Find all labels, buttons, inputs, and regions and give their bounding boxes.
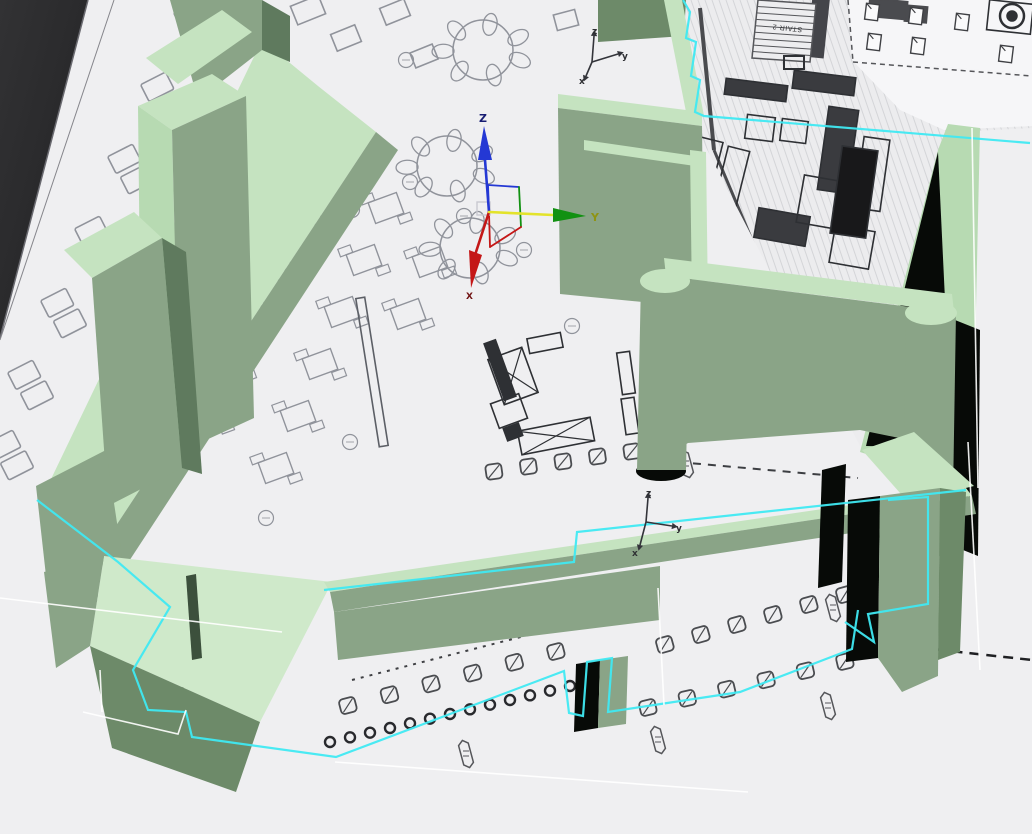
gizmo-y-axis-label: Y [590,211,600,224]
tripod1-y-label: y [622,52,628,62]
plan-circle [1007,11,1017,21]
gizmo-x-axis-label: X [466,292,473,302]
cylinder-top [640,269,690,293]
door-square [955,13,970,30]
tripod2-x-label: x [632,549,638,559]
cylinder-body[interactable] [637,280,690,470]
right-pier-front[interactable] [878,488,940,692]
tripod1-x-label: x [579,77,585,87]
column-cylinder-1[interactable] [636,269,690,481]
door-outline [865,3,880,20]
door-square [909,7,924,24]
doorway-shadow[interactable] [818,464,846,588]
door-outline [999,45,1014,62]
cylinder-top [905,301,957,325]
door-square [865,3,880,20]
door-square [999,45,1014,62]
door-outline [955,13,970,30]
door-outline [911,37,926,54]
tripod1-z-label: z [592,27,597,37]
door-square [867,33,882,50]
pier-front[interactable] [598,656,628,728]
door-square [911,37,926,54]
right-pier-shadow[interactable] [846,496,880,662]
tripod2-y-label: y [676,524,682,534]
gizmo-z-axis-label: Z [479,112,487,125]
viewport-3d[interactable]: Z Y X z y x z y x STAIR 2 [0,0,1032,834]
door-outline [867,33,882,50]
door-outline [909,7,924,24]
tripod2-z-label: z [646,489,651,499]
scene-canvas[interactable]: Z Y X z y x z y x STAIR 2 [0,0,1032,834]
gizmo-plane-handle-red[interactable] [489,213,490,247]
